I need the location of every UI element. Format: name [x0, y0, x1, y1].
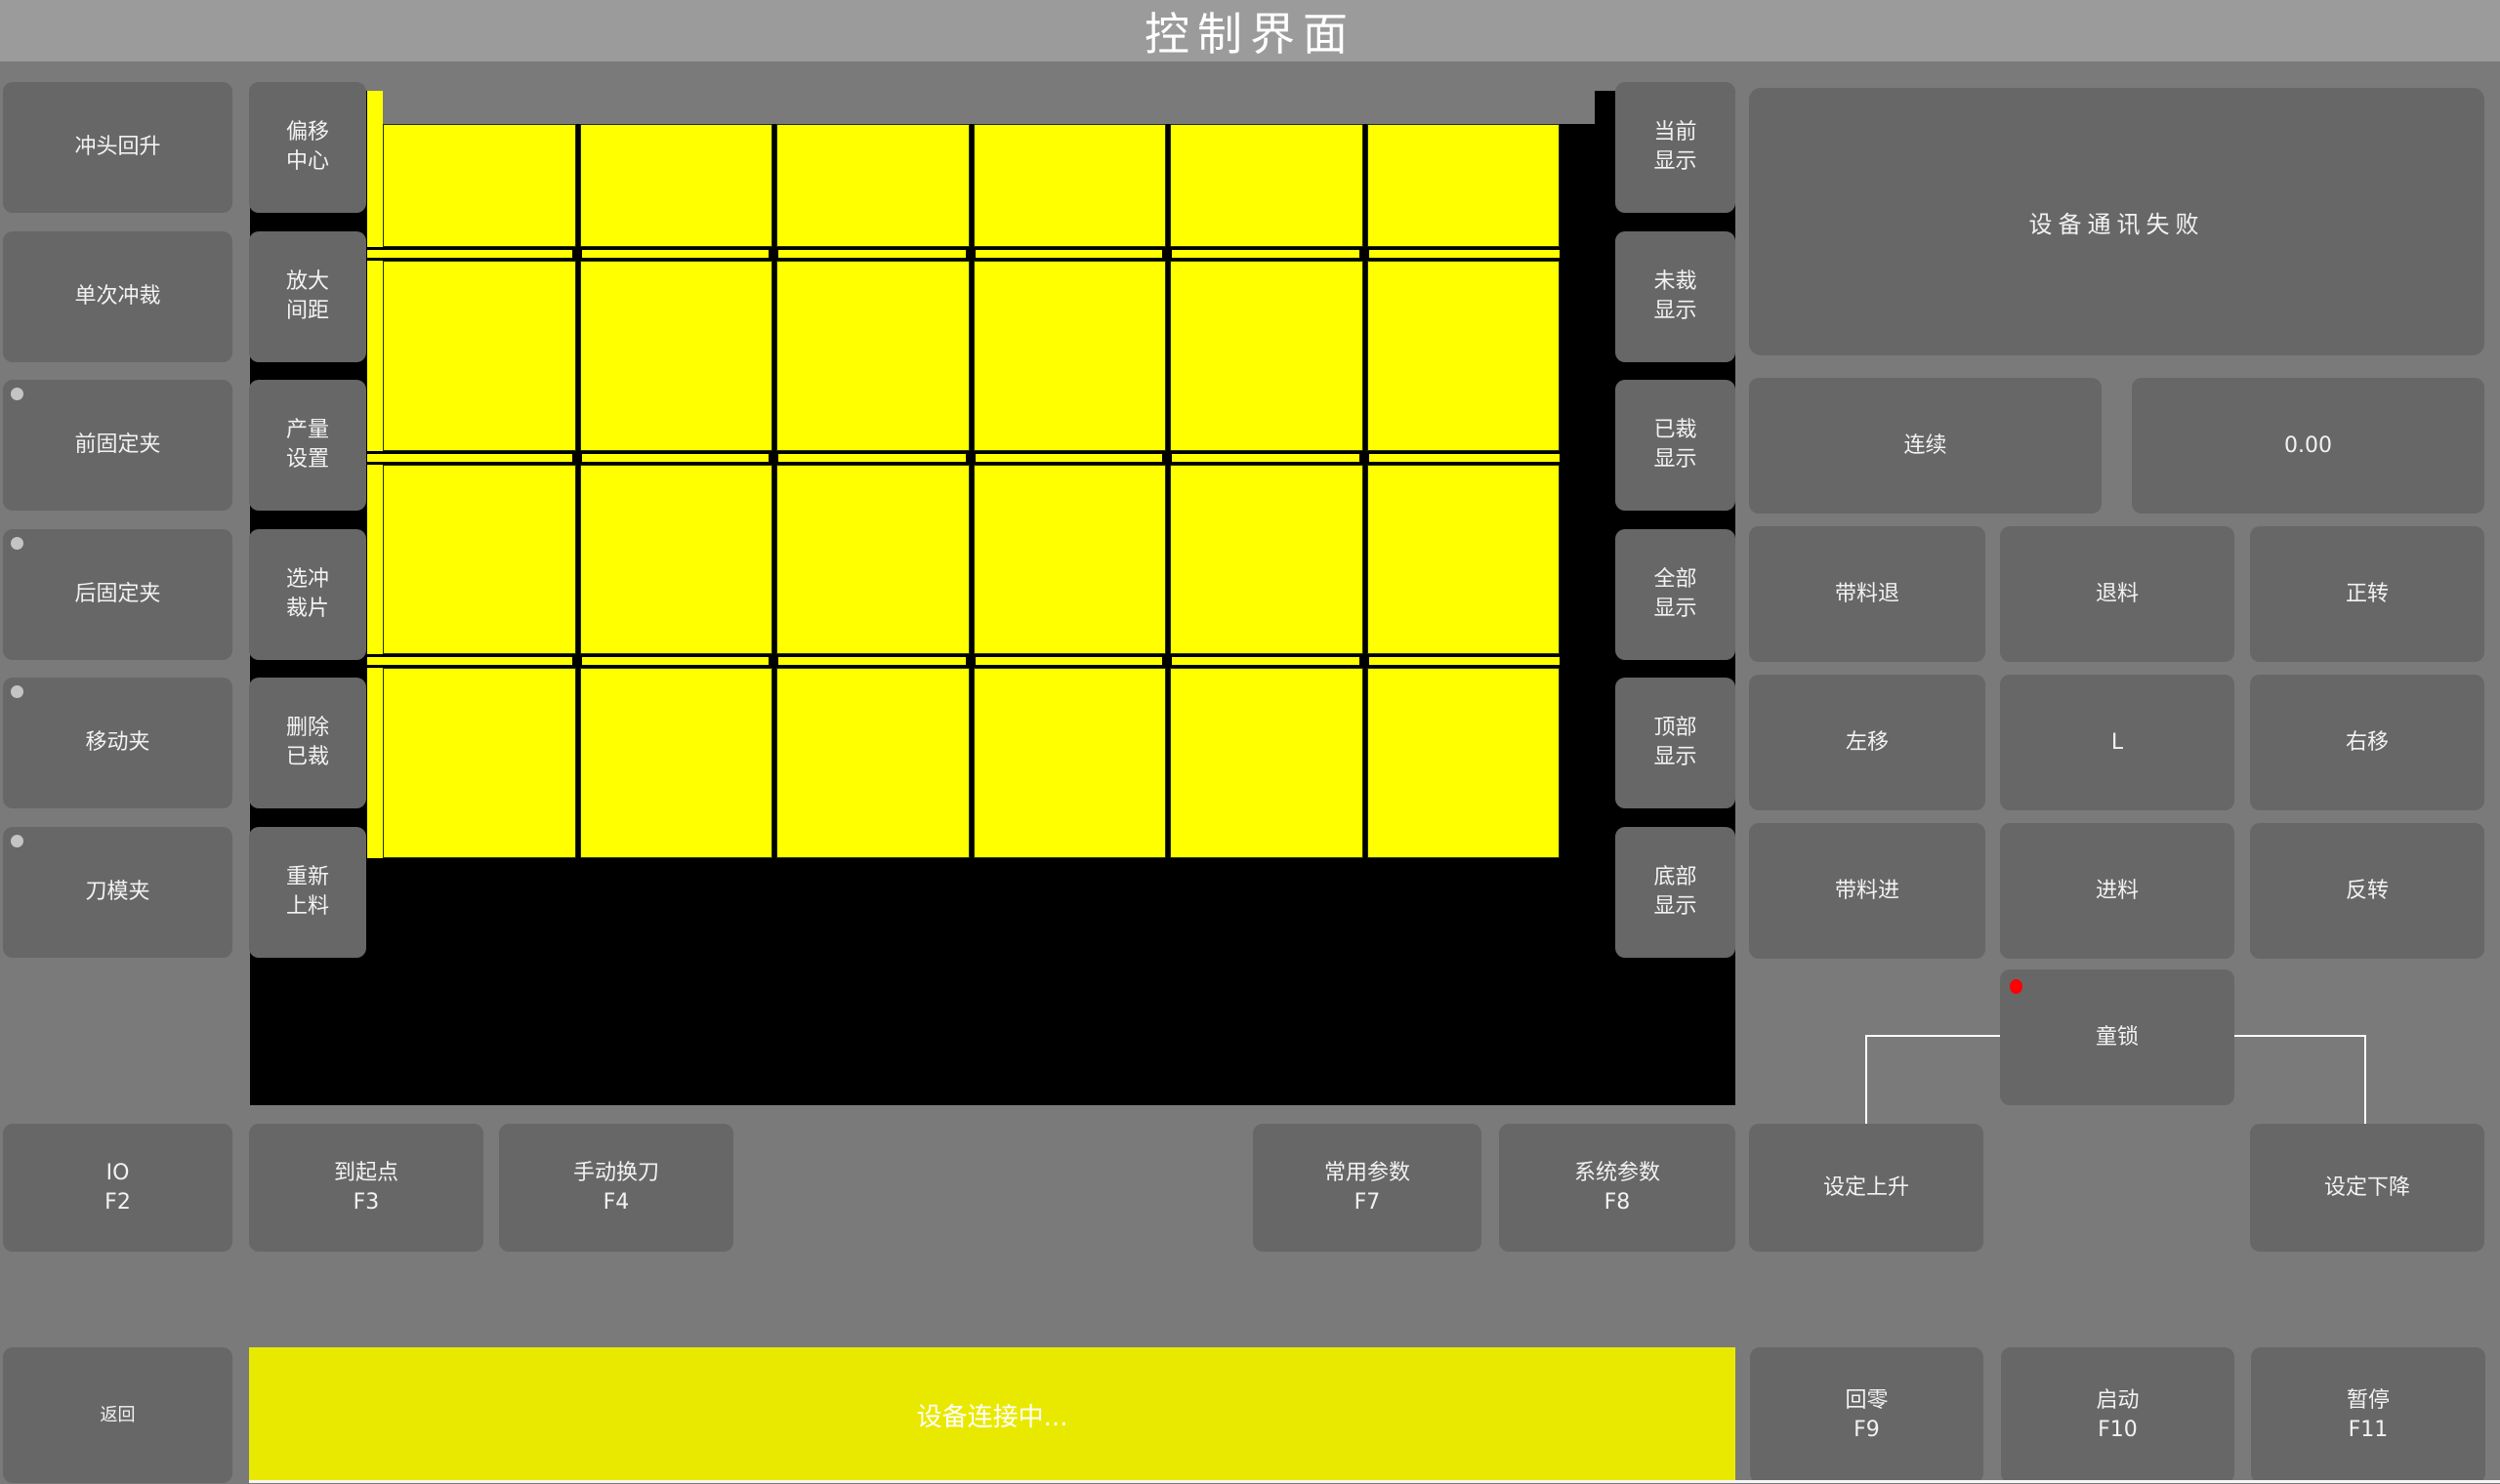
function-button-set-down[interactable]: 设定下降	[2250, 1124, 2484, 1252]
left-button[interactable]: 移动夹	[3, 678, 232, 808]
tool-button-label: 放大 间距	[286, 268, 329, 326]
connection-status-text: 设备连接中...	[917, 1397, 1068, 1433]
material-piece[interactable]	[580, 261, 773, 451]
left-button[interactable]: 单次冲裁	[3, 231, 232, 362]
left-button[interactable]: 刀模夹	[3, 827, 232, 958]
function-button-label: IO F2	[104, 1159, 131, 1217]
function-button-label: 常用参数 F7	[1324, 1159, 1410, 1217]
left-button-label: 刀模夹	[85, 878, 149, 907]
material-piece[interactable]	[776, 668, 970, 858]
tool-button-label: 偏移 中心	[286, 118, 329, 177]
jog-button-feed[interactable]: 进料	[2000, 823, 2234, 959]
function-button-label: 系统参数 F8	[1574, 1159, 1660, 1217]
jog-button-move-right[interactable]: 右移	[2250, 675, 2484, 810]
material-piece[interactable]	[383, 465, 576, 654]
material-piece[interactable]	[974, 261, 1167, 451]
material-piece[interactable]	[580, 124, 773, 247]
material-piece[interactable]	[383, 668, 576, 858]
left-button-label: 单次冲裁	[74, 282, 160, 311]
jog-button-unload[interactable]: 退料	[2000, 526, 2234, 662]
jog-button-label: 退料	[2096, 580, 2139, 609]
display-button-label: 底部 显示	[1653, 863, 1696, 922]
tool-button[interactable]: 放大 间距	[249, 231, 366, 362]
display-button[interactable]: 已裁 显示	[1615, 380, 1735, 511]
tool-button[interactable]: 重新 上料	[249, 827, 366, 958]
material-piece[interactable]	[1170, 465, 1363, 654]
tool-button[interactable]: 产量 设置	[249, 380, 366, 511]
material-piece[interactable]	[1367, 261, 1561, 451]
tool-button-label: 选冲 裁片	[286, 565, 329, 624]
title-bar: 控制界面	[0, 0, 2500, 62]
function-button-label: 手动换刀 F4	[573, 1159, 659, 1217]
status-dot	[11, 388, 23, 400]
display-button[interactable]: 底部 显示	[1615, 827, 1735, 958]
device-message: 设备通讯失败	[2029, 205, 2205, 239]
material-piece[interactable]	[1367, 668, 1561, 858]
function-button-label: 设定上升	[1823, 1174, 1909, 1203]
status-dot	[11, 537, 23, 550]
tool-button[interactable]: 删除 已裁	[249, 678, 366, 808]
device-message-panel: 设备通讯失败	[1749, 88, 2484, 355]
material-piece[interactable]	[776, 465, 970, 654]
left-button[interactable]: 后固定夹	[3, 529, 232, 660]
function-button-manual-change[interactable]: 手动换刀 F4	[499, 1124, 733, 1252]
back-button-label: 返回	[101, 1401, 136, 1430]
material-piece[interactable]	[1367, 465, 1561, 654]
material-piece[interactable]	[1170, 668, 1363, 858]
jog-button-l[interactable]: L	[2000, 675, 2234, 810]
display-button[interactable]: 全部 显示	[1615, 529, 1735, 660]
function-button-to-origin[interactable]: 到起点 F3	[249, 1124, 483, 1252]
left-button[interactable]: 冲头回升	[3, 82, 232, 213]
jog-button-label: 左移	[1846, 728, 1889, 758]
jog-button-reverse-turn[interactable]: 反转	[2250, 823, 2484, 959]
function-button-label: 到起点 F3	[334, 1159, 398, 1217]
connection-status-bar: 设备连接中...	[249, 1347, 1735, 1483]
tool-button-label: 产量 设置	[286, 416, 329, 474]
tool-button[interactable]: 偏移 中心	[249, 82, 366, 213]
function-button-common-params[interactable]: 常用参数 F7	[1253, 1124, 1481, 1252]
material-piece[interactable]	[580, 668, 773, 858]
material-piece[interactable]	[974, 465, 1167, 654]
display-button-label: 未裁 显示	[1653, 268, 1696, 326]
material-piece[interactable]	[1367, 124, 1561, 247]
tool-button-label: 删除 已裁	[286, 714, 329, 772]
material-web-strip	[367, 247, 1560, 261]
bracket-line	[2364, 1035, 2366, 1124]
jog-button-label: 带料进	[1835, 877, 1899, 906]
canvas-top-margin	[383, 91, 1595, 124]
mode-button-label: 连续	[1903, 432, 1946, 461]
function-button-label: 设定下降	[2324, 1174, 2410, 1203]
child-lock-button[interactable]: 童锁	[2000, 969, 2234, 1105]
home-button-label: 回零 F9	[1845, 1386, 1888, 1445]
start-button-label: 启动 F10	[2096, 1386, 2139, 1445]
material-web-strip	[367, 451, 1560, 465]
left-button-label: 移动夹	[85, 728, 149, 758]
display-button-label: 已裁 显示	[1653, 416, 1696, 474]
display-button[interactable]: 未裁 显示	[1615, 231, 1735, 362]
material-piece[interactable]	[383, 124, 576, 247]
page-title: 控制界面	[1145, 0, 1355, 63]
material-piece[interactable]	[1170, 261, 1363, 451]
cutting-canvas	[250, 91, 1735, 1105]
display-button-label: 当前 显示	[1653, 118, 1696, 177]
value-display-text: 0.00	[2284, 432, 2332, 461]
material-piece[interactable]	[580, 465, 773, 654]
jog-button-label: 带料退	[1835, 580, 1899, 609]
jog-button-label: L	[2111, 728, 2123, 758]
jog-button-label: 右移	[2346, 728, 2389, 758]
jog-button-strip-back[interactable]: 带料退	[1749, 526, 1985, 662]
left-button[interactable]: 前固定夹	[3, 380, 232, 511]
bracket-line	[1865, 1035, 1867, 1124]
jog-button-forward-turn[interactable]: 正转	[2250, 526, 2484, 662]
material-piece[interactable]	[776, 261, 970, 451]
back-button[interactable]: 返回	[3, 1347, 232, 1483]
left-button-label: 冲头回升	[74, 133, 160, 162]
display-button[interactable]: 当前 显示	[1615, 82, 1735, 213]
pause-button-label: 暂停 F11	[2347, 1386, 2390, 1445]
status-dot	[11, 835, 23, 847]
tool-button-label: 重新 上料	[286, 863, 329, 922]
jog-button-label: 进料	[2096, 877, 2139, 906]
material-piece[interactable]	[974, 668, 1167, 858]
function-button-io[interactable]: IO F2	[3, 1124, 232, 1252]
home-button[interactable]: 回零 F9	[1750, 1347, 1983, 1483]
jog-button-label: 正转	[2346, 580, 2389, 609]
jog-button-move-left[interactable]: 左移	[1749, 675, 1985, 810]
display-button[interactable]: 顶部 显示	[1615, 678, 1735, 808]
display-button-label: 全部 显示	[1653, 565, 1696, 624]
status-dot	[11, 685, 23, 698]
left-button-label: 后固定夹	[74, 580, 160, 609]
material-web-strip	[367, 654, 1560, 668]
mode-button[interactable]: 连续	[1749, 378, 2102, 514]
child-lock-label: 童锁	[2096, 1023, 2139, 1052]
material-piece[interactable]	[776, 124, 970, 247]
tool-button[interactable]: 选冲 裁片	[249, 529, 366, 660]
jog-button-label: 反转	[2346, 877, 2389, 906]
material-piece[interactable]	[974, 124, 1167, 247]
pause-button[interactable]: 暂停 F11	[2251, 1347, 2485, 1483]
display-button-label: 顶部 显示	[1653, 714, 1696, 772]
value-display[interactable]: 0.00	[2132, 378, 2484, 514]
bottom-edge-highlight	[249, 1480, 2500, 1483]
material-piece[interactable]	[383, 261, 576, 451]
material-edge-strip	[367, 91, 383, 858]
start-button[interactable]: 启动 F10	[2001, 1347, 2234, 1483]
function-button-set-up[interactable]: 设定上升	[1749, 1124, 1983, 1252]
alarm-dot	[2010, 979, 2022, 994]
left-button-label: 前固定夹	[74, 431, 160, 460]
jog-button-strip-feed[interactable]: 带料进	[1749, 823, 1985, 959]
material-piece[interactable]	[1170, 124, 1363, 247]
function-button-system-params[interactable]: 系统参数 F8	[1499, 1124, 1735, 1252]
